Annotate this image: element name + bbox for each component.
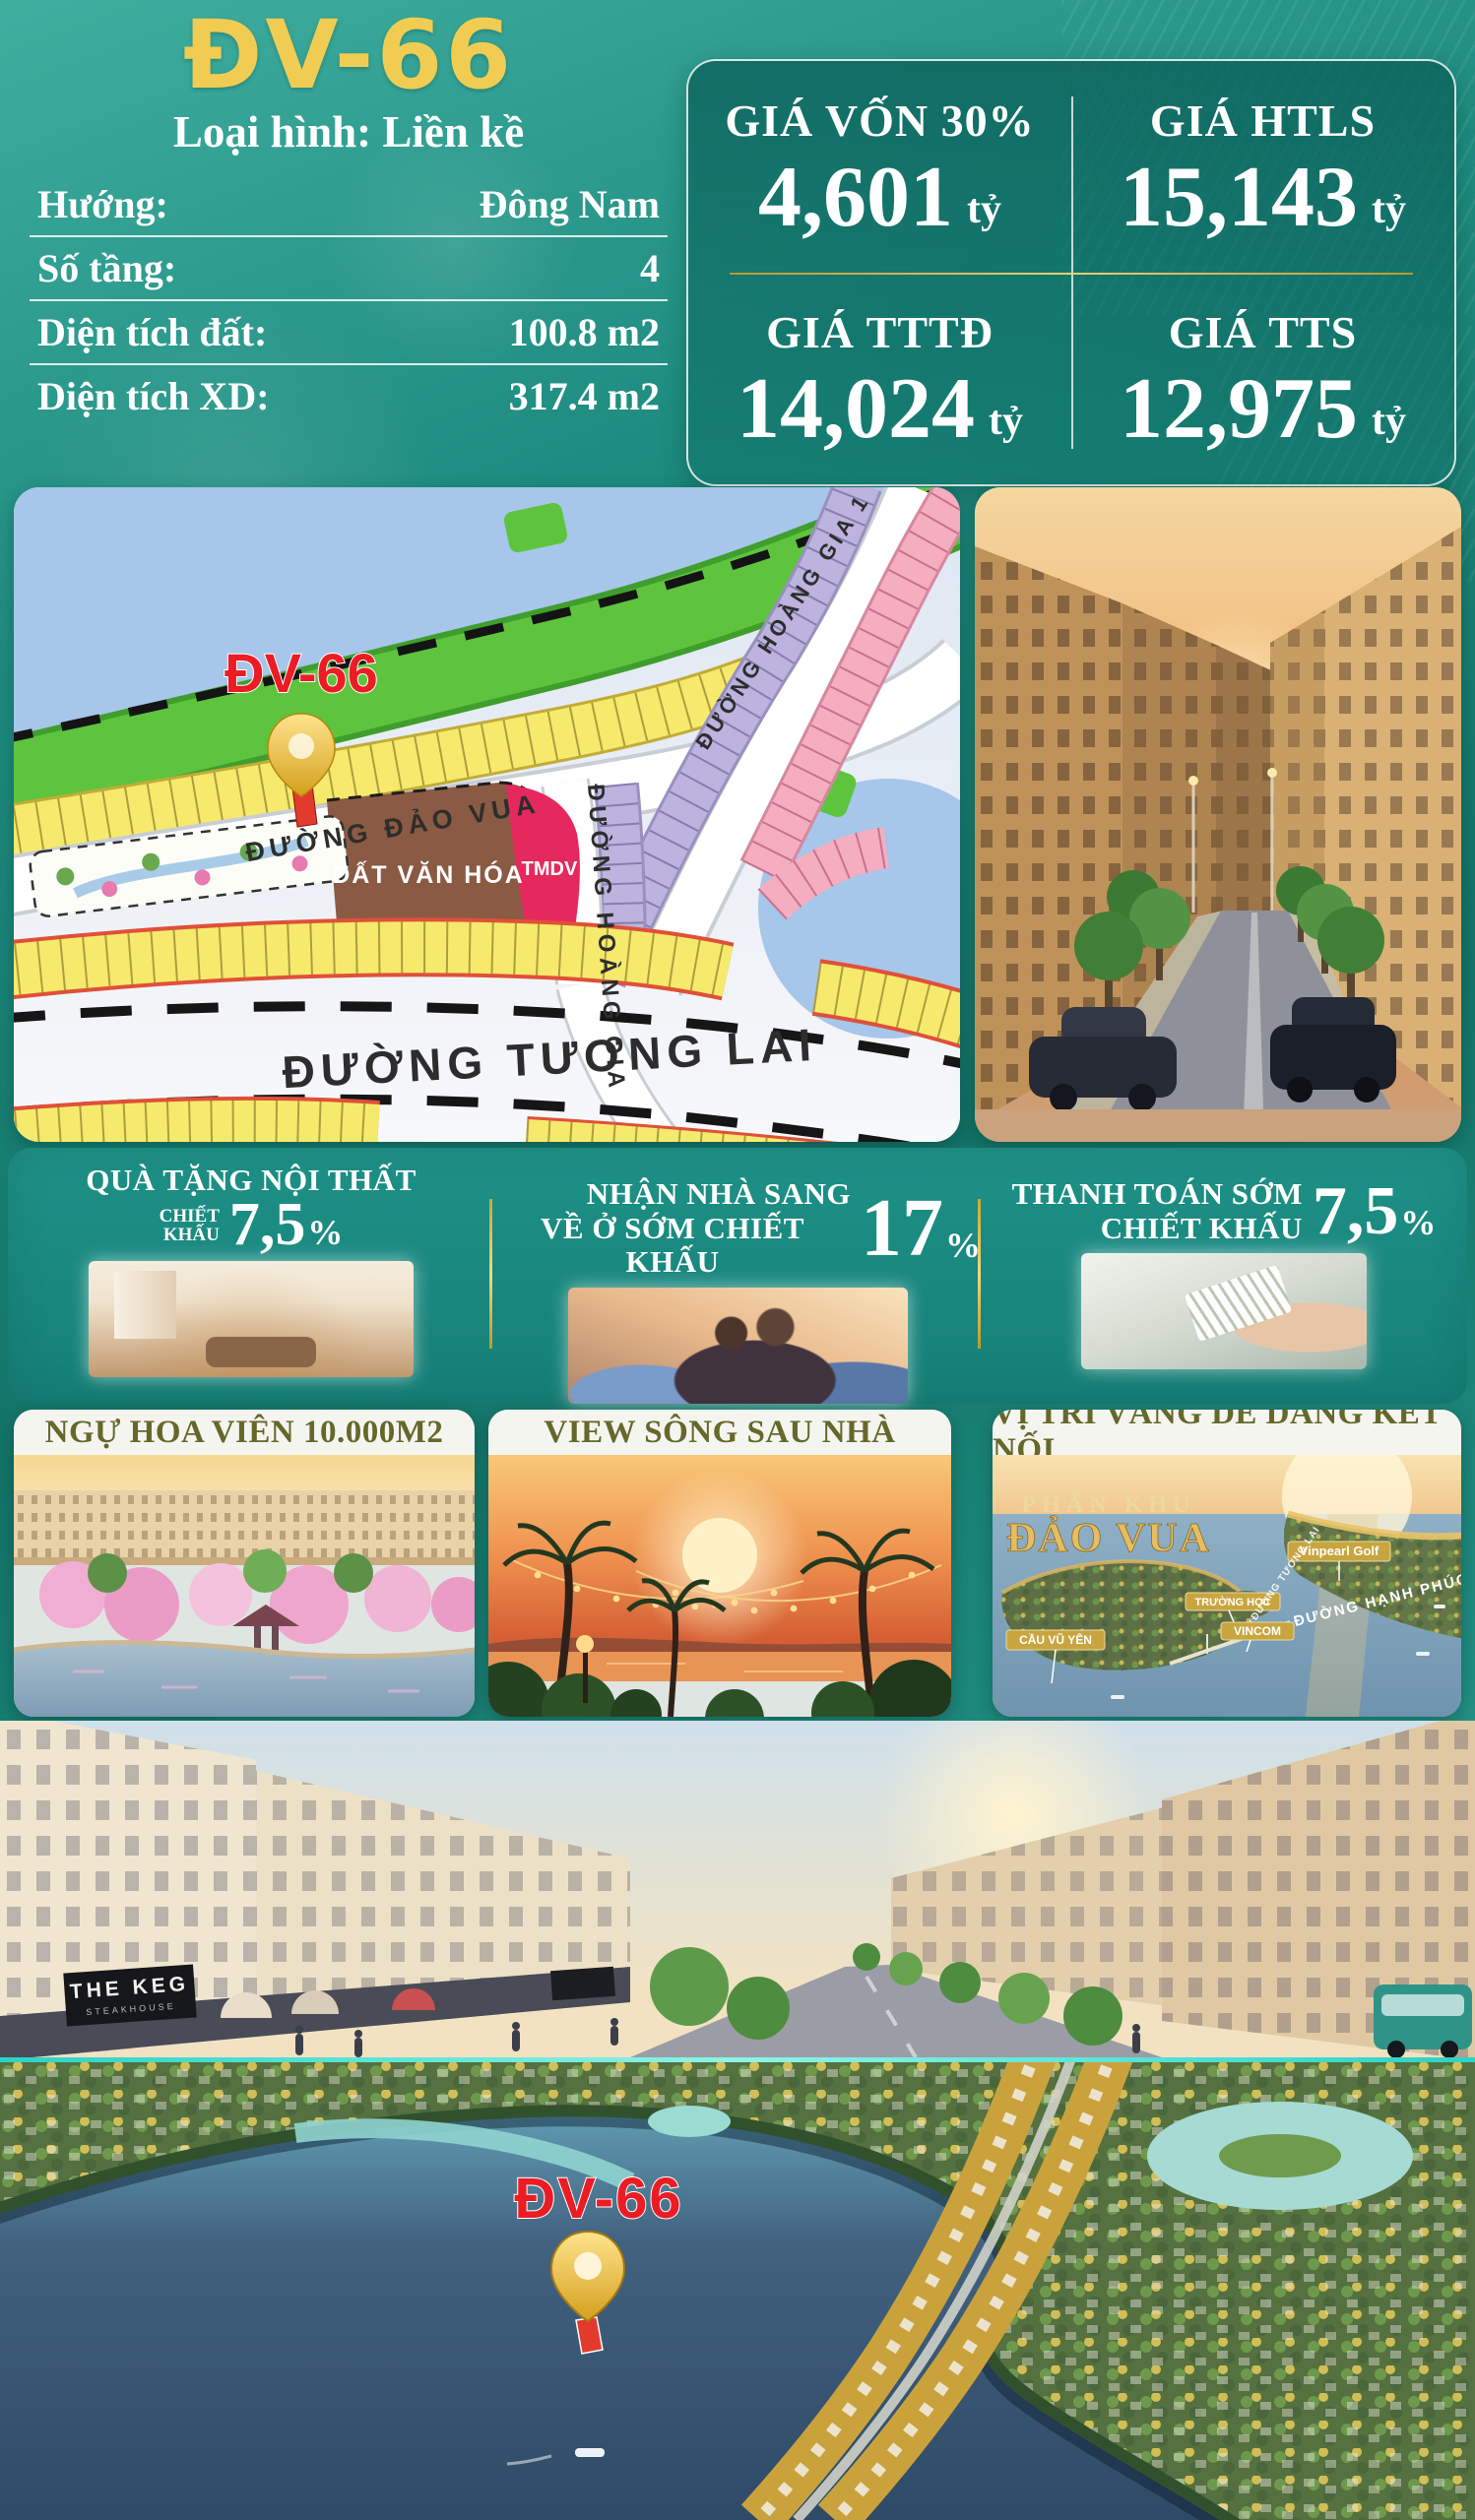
- zone-label-culture: ĐẤT VĂN HÓA: [332, 859, 525, 889]
- spec-value: 317.4 m2: [509, 373, 660, 419]
- street-scene-photo: THE KEG STEAKHOUSE: [0, 1721, 1475, 2057]
- property-header: ĐV-66 Loại hình: Liền kề Hướng: Đông Nam…: [30, 8, 668, 427]
- promo-percent-value: 7,5: [1313, 1180, 1399, 1242]
- card-photo-garden: [14, 1455, 475, 1717]
- promo-discount-prefix: CHIẾT KHẤU: [160, 1207, 220, 1244]
- property-type: Loại hình: Liền kề: [30, 106, 668, 157]
- promo-prefix-line: CHIẾT: [160, 1207, 220, 1226]
- spec-label: Diện tích đất:: [37, 309, 267, 355]
- masterplan-svg: ĐƯỜNG ĐẢO VUA ĐƯỜNG HOÀNG GIA ĐƯỜNG HOÀN…: [14, 487, 960, 1142]
- feature-card-garden: NGỰ HOA VIÊN 10.000M2: [14, 1410, 475, 1717]
- location-svg: PHÂN KHU ĐẢO VUA CẦU VŨ YÊN TRƯỜNG HỌC V…: [993, 1455, 1461, 1717]
- card-title: NGỰ HOA VIÊN 10.000M2: [14, 1410, 475, 1455]
- feature-card-location: VỊ TRÍ VÀNG DỄ DÀNG KẾT NỐI: [993, 1410, 1461, 1717]
- promo-photo-interior: [89, 1261, 414, 1377]
- spec-value: 4: [640, 245, 660, 291]
- spec-label: Diện tích XD:: [37, 373, 270, 419]
- masterplan-map: ĐƯỜNG ĐẢO VUA ĐƯỜNG HOÀNG GIA ĐƯỜNG HOÀN…: [14, 487, 960, 1142]
- promo-photo-couple: [568, 1288, 908, 1404]
- spec-row-land-area: Diện tích đất: 100.8 m2: [30, 301, 668, 365]
- promo-divider: [489, 1199, 492, 1349]
- svg-text:VINCOM: VINCOM: [1234, 1624, 1281, 1638]
- price-value: 14,024: [737, 368, 975, 451]
- price-unit: tỷ: [1372, 186, 1406, 233]
- price-value: 12,975: [1120, 368, 1358, 451]
- small-shop-sign: [550, 1967, 615, 2000]
- promo-title-line: VỀ Ở SỚM CHIẾT KHẤU: [494, 1212, 851, 1280]
- river-svg: [488, 1455, 951, 1717]
- price-label: GIÁ TTS: [1169, 306, 1358, 358]
- promo-divider: [978, 1199, 981, 1349]
- svg-text:CẦU VŨ YÊN: CẦU VŨ YÊN: [1019, 1632, 1092, 1647]
- spec-label: Số tầng:: [37, 245, 176, 291]
- percent-symbol: %: [307, 1217, 343, 1248]
- promo-prefix-line: KHẤU: [163, 1226, 220, 1244]
- price-divider-gold: [730, 273, 1413, 275]
- card-title: VỊ TRÍ VÀNG DỄ DÀNG KẾT NỐI: [993, 1410, 1461, 1455]
- price-unit: tỷ: [1372, 398, 1406, 445]
- feature-card-river-view: VIEW SÔNG SAU NHÀ: [488, 1410, 951, 1717]
- promo-percent: 7,5%: [229, 1198, 344, 1253]
- aerial-svg: ĐV-66: [0, 2062, 1475, 2520]
- price-label: GIÁ TTTĐ: [766, 306, 994, 358]
- card-title: VIEW SÔNG SAU NHÀ: [488, 1410, 951, 1455]
- garden-svg: [14, 1455, 475, 1717]
- property-poster: ĐV-66 Loại hình: Liền kề Hướng: Đông Nam…: [0, 0, 1475, 2520]
- percent-symbol: %: [945, 1229, 981, 1261]
- card-photo-location: PHÂN KHU ĐẢO VUA CẦU VŨ YÊN TRƯỜNG HỌC V…: [993, 1455, 1461, 1717]
- promo-title-line: NHẬN NHÀ SANG: [587, 1177, 851, 1212]
- promo-percent-value: 7,5: [229, 1198, 306, 1253]
- area-label-line1: PHÂN KHU: [1022, 1491, 1196, 1518]
- price-label: GIÁ VỐN 30%: [725, 94, 1034, 147]
- promo-percent-value: 17: [861, 1191, 943, 1266]
- spec-row-built-area: Diện tích XD: 317.4 m2: [30, 365, 668, 427]
- promo-early-move-in: NHẬN NHÀ SANG VỀ Ở SỚM CHIẾT KHẤU 17%: [494, 1148, 981, 1404]
- area-label-line2: ĐẢO VUA: [1006, 1516, 1211, 1561]
- spec-value: 100.8 m2: [509, 309, 660, 355]
- promo-percent: 7,5%: [1313, 1180, 1437, 1242]
- street-render-photo: [975, 487, 1461, 1142]
- storefront-sign: THE KEG STEAKHOUSE: [63, 1964, 196, 2026]
- map-marker-label: ĐV-66: [224, 642, 378, 704]
- percent-symbol: %: [1400, 1207, 1436, 1238]
- spec-label: Hướng:: [37, 181, 168, 227]
- price-cell-tttd: GIÁ TTTĐ 14,024tỷ: [688, 273, 1071, 484]
- promo-band: QUÀ TẶNG NỘI THẤT CHIẾT KHẤU 7,5% NHẬN N…: [8, 1148, 1467, 1404]
- promo-photo-payment: [1081, 1253, 1367, 1369]
- bus: [1374, 1984, 1472, 2057]
- price-value: 15,143: [1120, 157, 1358, 239]
- spec-row-floors: Số tầng: 4: [30, 237, 668, 301]
- promo-title-line: CHIẾT KHẤU: [1101, 1212, 1303, 1246]
- price-value: 4,601: [758, 157, 953, 239]
- spec-table: Hướng: Đông Nam Số tầng: 4 Diện tích đất…: [30, 173, 668, 427]
- aerial-marker-label: ĐV-66: [514, 2167, 682, 2231]
- price-cell-htls: GIÁ HTLS 15,143tỷ: [1071, 61, 1454, 273]
- promo-percent: 17%: [861, 1191, 981, 1266]
- foreground-pavement: [975, 1109, 1461, 1142]
- promo-early-payment: THANH TOÁN SỚM CHIẾT KHẤU 7,5%: [981, 1148, 1467, 1404]
- spec-row-direction: Hướng: Đông Nam: [30, 173, 668, 237]
- street-render-svg: [975, 487, 1461, 1142]
- price-cell-von: GIÁ VỐN 30% 4,601tỷ: [688, 61, 1071, 273]
- card-photo-river: [488, 1455, 951, 1717]
- spec-value: Đông Nam: [480, 181, 660, 227]
- price-unit: tỷ: [989, 398, 1023, 445]
- zone-label-commercial: TMDV: [522, 858, 578, 880]
- price-label: GIÁ HTLS: [1150, 94, 1376, 147]
- aerial-masterplan-photo: ĐV-66: [0, 2062, 1475, 2520]
- price-unit: tỷ: [967, 186, 1001, 233]
- promo-furniture-gift: QUÀ TẶNG NỘI THẤT CHIẾT KHẤU 7,5%: [8, 1148, 494, 1404]
- price-panel: GIÁ VỐN 30% 4,601tỷ GIÁ HTLS 15,143tỷ GI…: [686, 59, 1456, 486]
- price-cell-tts: GIÁ TTS 12,975tỷ: [1071, 273, 1454, 484]
- property-code-title: ĐV-66: [30, 8, 668, 104]
- promo-title-line: THANH TOÁN SỚM: [1012, 1177, 1303, 1212]
- street-scene-svg: THE KEG STEAKHOUSE: [0, 1721, 1475, 2057]
